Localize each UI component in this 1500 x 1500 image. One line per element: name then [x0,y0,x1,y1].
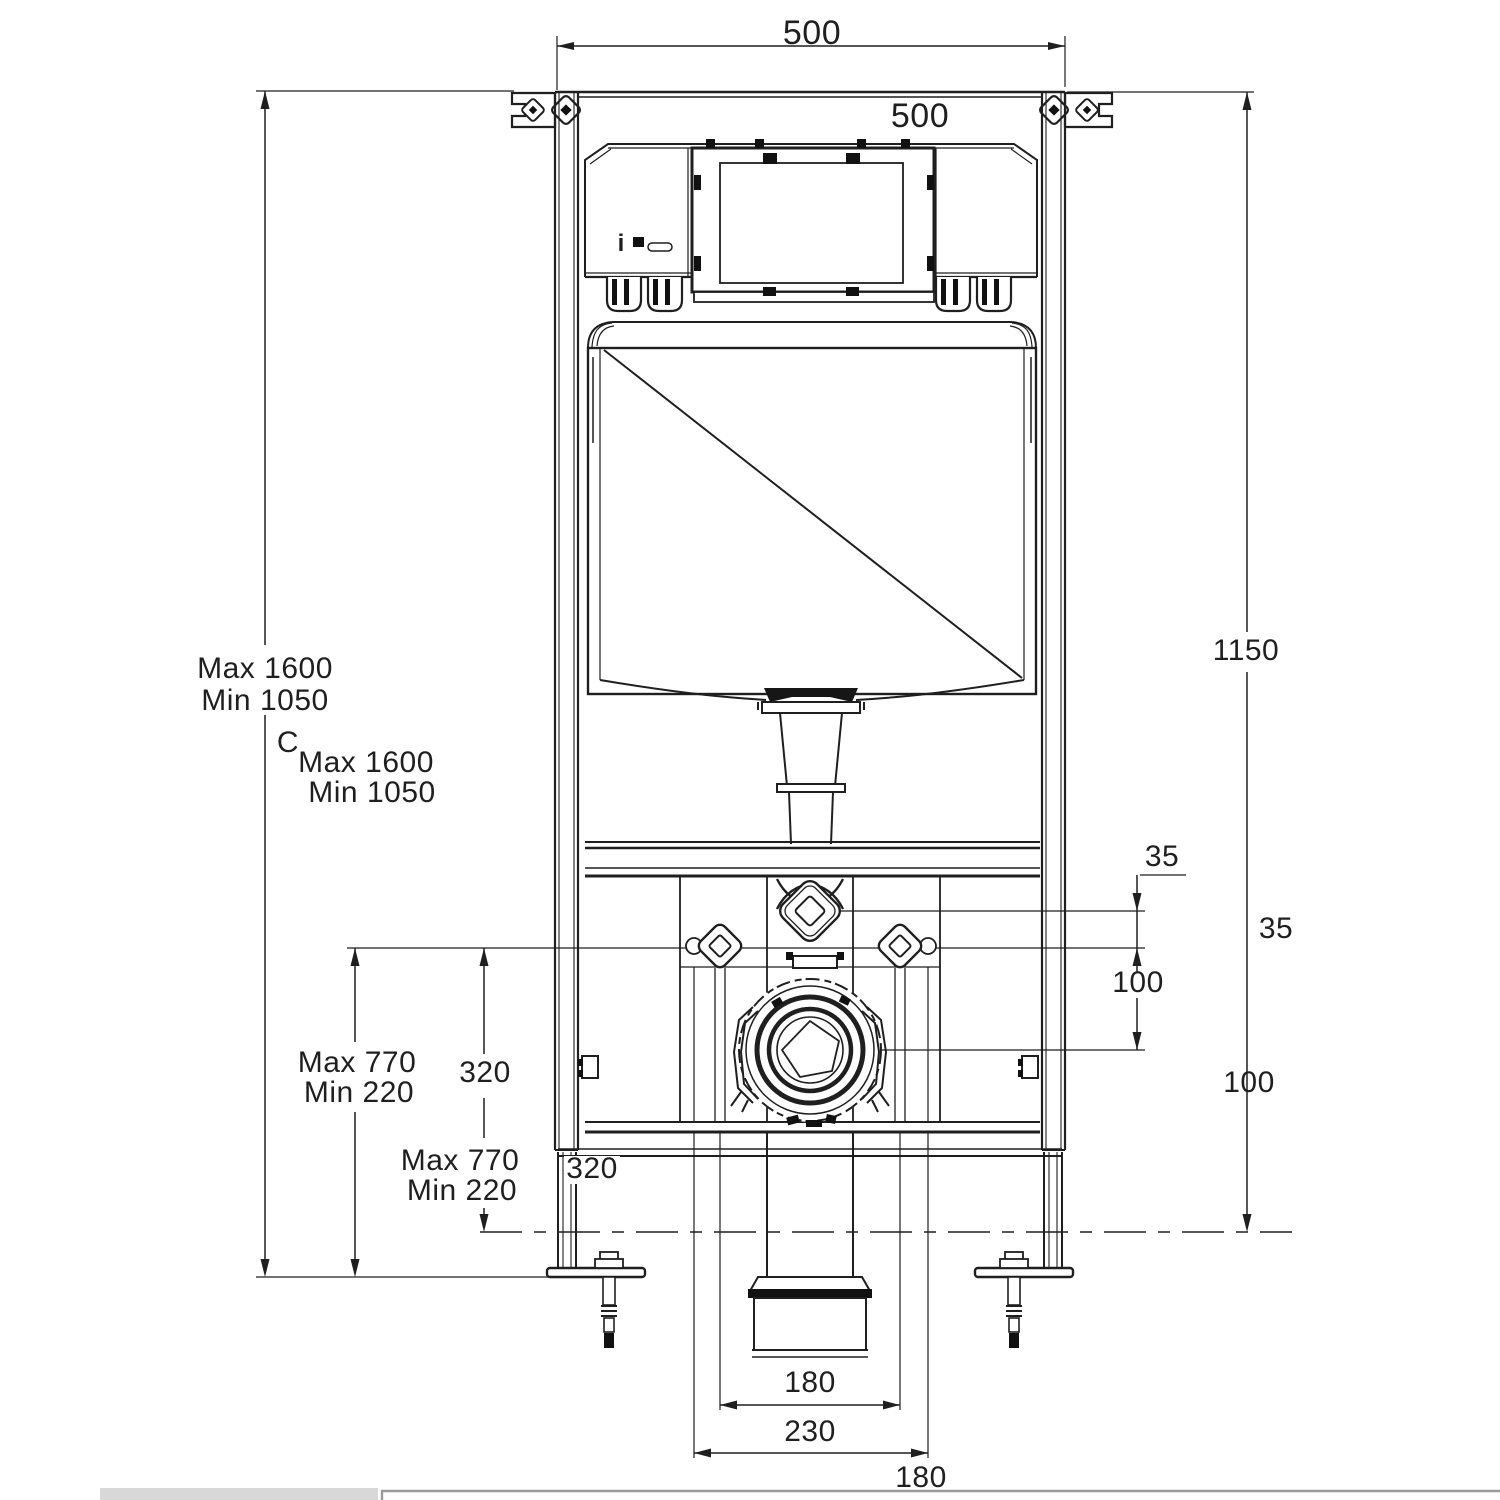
dim-drain-offset-dup: 100 [1223,1066,1275,1099]
dim-frame-height-min-dup: Min 1050 [308,776,435,809]
foot-plate-right [975,1268,1073,1277]
flush-pipe [777,713,845,844]
drain-assembly [731,978,889,1127]
dim-inlet-offset: 35 [1145,840,1179,873]
dim-right-height: 1150 [1213,634,1280,667]
info-icon [633,237,672,251]
anchor-bolt-left [595,1252,623,1348]
installation-frame-drawing: 500 500 Max 1600 Min 1050 C Max 1600 Min… [0,0,1500,1500]
waste-outlet [748,1132,872,1357]
dim-drain-height: 320 [459,1056,511,1089]
drawing-canvas: 500 500 Max 1600 Min 1050 C Max 1600 Min… [0,0,1500,1500]
dim-inlet-offset-dup: 35 [1259,912,1293,945]
cistern-tank [588,322,1036,844]
dim-top-width-dup: 500 [891,97,949,135]
dim-pan-height-max-dup: Max 770 [401,1144,520,1177]
flush-valve-seat [764,688,858,702]
dim-drain-height-dup: 320 [566,1152,618,1185]
dim-fixing-spacing: 230 [784,1415,836,1448]
anchor-bolt-right [1000,1252,1028,1348]
dim-outlet-width: 180 [784,1366,836,1399]
section-mark-c: C [277,726,299,759]
dim-pan-height-max: Max 770 [298,1046,417,1079]
foot-plate-left [547,1268,645,1277]
flush-plate-window [720,163,903,283]
flush-plate-housing [585,139,1037,311]
dim-outlet-width-dup: 180 [895,1461,947,1494]
dim-frame-height-max-dup: Max 1600 [298,746,434,779]
fixing-bolt-icons [521,94,1099,125]
info-mark-text: i [618,230,625,257]
dim-top-width: 500 [783,14,841,52]
water-inlet-fitting [776,877,844,945]
dim-drain-offset: 100 [1112,966,1164,999]
crossbars [585,842,1040,876]
dim-frame-height-min: Min 1050 [201,684,328,717]
dim-pan-height-min: Min 220 [304,1076,414,1109]
footer-grey-bar [100,1488,378,1500]
dim-frame-height-max: Max 1600 [197,652,333,685]
dim-pan-height-min-dup: Min 220 [407,1174,517,1207]
